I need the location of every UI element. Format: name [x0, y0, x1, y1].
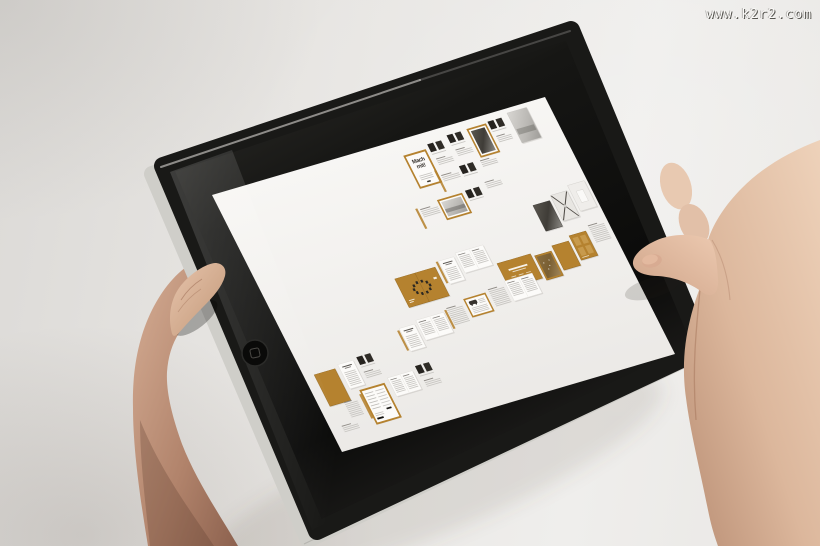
watermark: www.k2r2.com [706, 7, 812, 22]
scene: Machmit! www.k2r2.com [0, 0, 820, 546]
right-hand [684, 140, 820, 546]
home-button[interactable] [242, 340, 268, 366]
photo-canvas: Machmit! [0, 0, 820, 546]
